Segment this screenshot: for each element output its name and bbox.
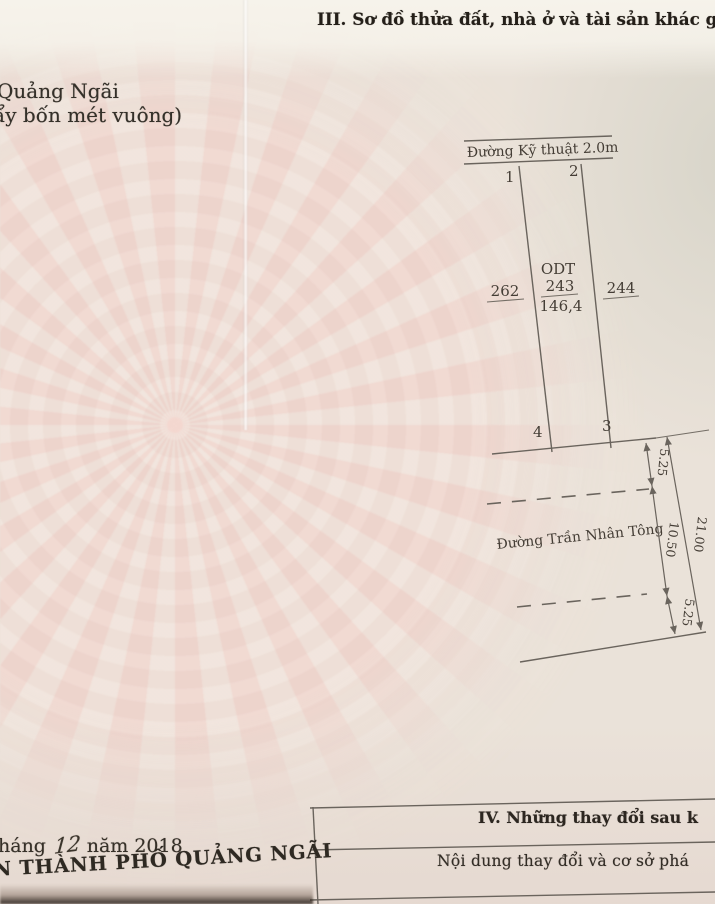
cadastral-diagram: Đường Kỹ thuật 2.0m 1 2 3 4 262 244 ODT …	[0, 0, 715, 904]
scan-edge-shadow	[0, 884, 313, 904]
owner-text-line1: Quảng Ngãi	[0, 79, 119, 103]
table-row-divider	[310, 892, 715, 900]
scanned-land-certificate-page: III. Sơ đồ thửa đất, nhà ở và tài sản kh…	[0, 0, 715, 904]
owner-text-line2: ẩy bốn mét vuông)	[0, 103, 182, 127]
street-dashed-line-lower	[517, 594, 647, 607]
table-top-border	[310, 799, 715, 808]
corner-point-3: 3	[602, 417, 612, 435]
parcel-right-edge	[581, 164, 611, 448]
street-far-edge-line	[520, 632, 706, 662]
dimension-segment-top	[646, 443, 652, 486]
dimension-bottom-value: 5.25	[679, 598, 697, 627]
dimension-top-tick	[656, 430, 709, 438]
road-top-label: Đường Kỹ thuật 2.0m	[467, 140, 619, 161]
parcel-area: 146,4	[540, 297, 583, 315]
street-dashed-line-upper	[487, 489, 649, 504]
dimension-middle-value: 10.50	[663, 521, 682, 558]
corner-point-4: 4	[533, 423, 543, 441]
parcel-number: 243	[546, 277, 575, 295]
table-column-header: Nội dung thay đổi và cơ sở phá	[437, 852, 689, 870]
parcel-left-number: 262	[491, 282, 520, 300]
dimension-segment-bottom	[667, 596, 675, 634]
dimension-total-value: 21.00	[691, 516, 710, 553]
date-prefix: háng	[0, 835, 46, 857]
street-label: Đường Trần Nhân Tông	[496, 520, 664, 553]
corner-point-2: 2	[569, 162, 579, 180]
section-iii-heading: III. Sơ đồ thửa đất, nhà ở và tài sản kh…	[317, 9, 715, 29]
section-iv-heading: IV. Những thay đổi sau k	[478, 808, 698, 827]
corner-point-1: 1	[505, 168, 515, 186]
parcel-bottom-line	[492, 438, 656, 454]
parcel-land-use-code: ODT	[541, 260, 575, 278]
dimension-top-value: 5.25	[655, 448, 673, 477]
table-header-divider	[310, 842, 715, 850]
parcel-right-number: 244	[607, 279, 636, 297]
